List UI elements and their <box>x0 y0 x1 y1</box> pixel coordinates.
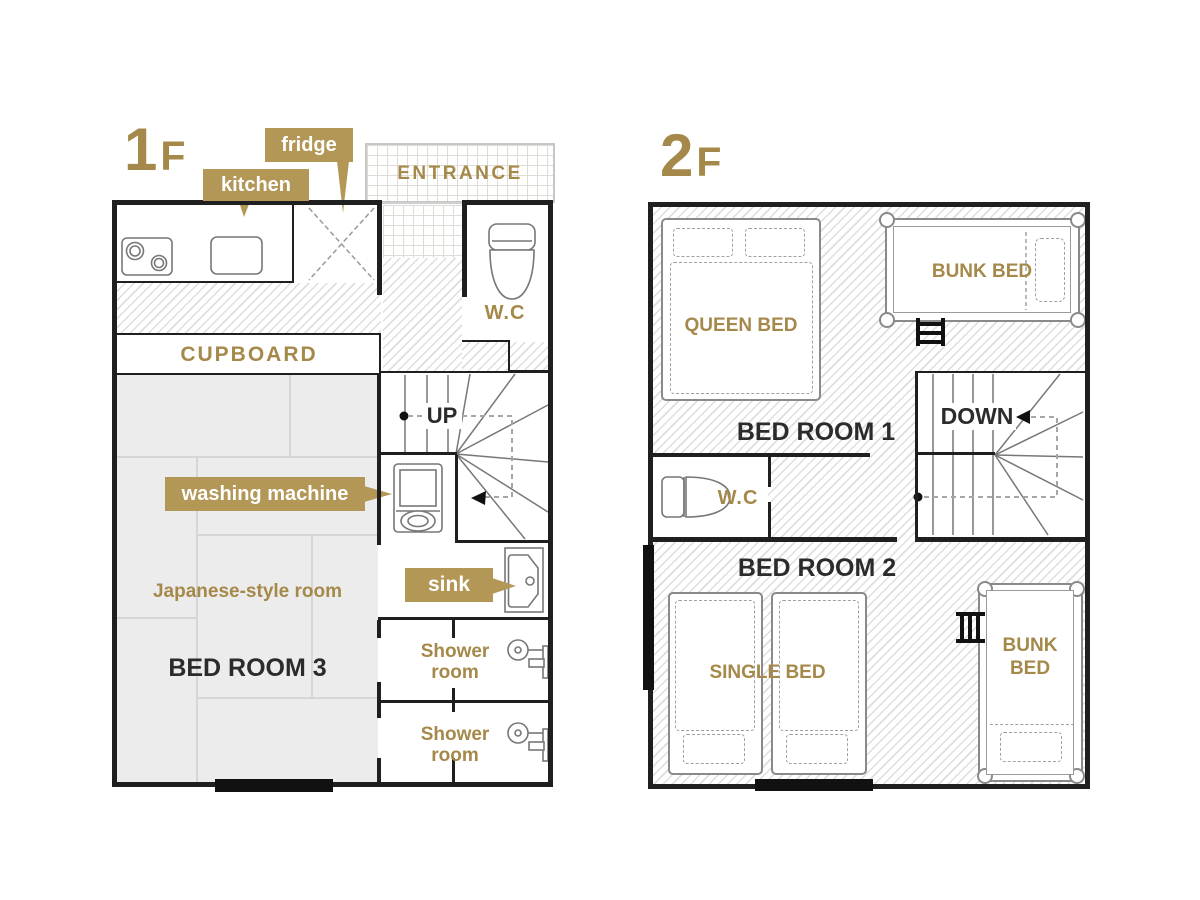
fridge-callout-tail <box>337 161 349 213</box>
wall-segment <box>648 202 1090 207</box>
tatami-mat-line <box>198 534 378 536</box>
fridge-icon <box>309 208 374 280</box>
wall-segment <box>915 537 1085 542</box>
tatami-mat-line <box>289 375 291 456</box>
wall-segment <box>377 200 382 295</box>
wall-segment <box>648 202 653 789</box>
floor1-title: 1F <box>124 120 185 180</box>
fridge-callout: fridge <box>265 128 353 162</box>
bunk-bed-post <box>1070 312 1086 328</box>
wall-segment <box>1085 202 1090 789</box>
wall-segment <box>377 373 381 545</box>
tatami-mat-line <box>117 617 196 619</box>
stairs-edge <box>455 540 548 543</box>
shower-room-label: Shower room <box>390 724 520 766</box>
floor1-title-letter: F <box>160 136 185 177</box>
sink-callout-tail <box>492 578 516 594</box>
tatami-mat-line <box>198 697 378 699</box>
bedroom1-label: BED ROOM 1 <box>733 418 899 447</box>
single-bed-pillow <box>786 734 848 764</box>
single-bed-pillow <box>683 734 745 764</box>
entrance-tile-inner <box>383 205 462 258</box>
down-label: DOWN <box>938 403 1016 430</box>
wall-segment <box>653 453 870 457</box>
stairs-edge <box>381 452 457 455</box>
entrance-threshold <box>381 202 462 204</box>
stairs-edge <box>915 371 1085 373</box>
wall-segment <box>377 620 381 638</box>
bunk-bed-post <box>879 312 895 328</box>
shower-room-line2: room <box>390 662 520 683</box>
washing-machine-callout: washing machine <box>165 477 365 511</box>
wall-segment <box>462 200 553 205</box>
single-bed-label: SINGLE BED <box>668 662 867 684</box>
wc-label: W.C <box>462 302 548 325</box>
wc-wall <box>508 340 510 372</box>
queen-bed-label: QUEEN BED <box>661 315 821 337</box>
kitchen-callout: kitchen <box>203 169 309 201</box>
cupboard-edge <box>117 333 381 335</box>
hallway-hatch <box>383 258 462 373</box>
floor1-title-number: 1 <box>124 120 158 180</box>
shower-room-line1: Shower <box>390 724 520 745</box>
staircase-floor <box>915 373 1085 537</box>
queen-bed-pillow <box>745 228 805 257</box>
floor2-title-number: 2 <box>660 126 694 186</box>
door-mark <box>215 779 333 792</box>
tatami-mat-line <box>117 456 378 458</box>
shower-room-label: Shower room <box>390 641 520 683</box>
wc-label: W.C <box>705 487 771 510</box>
floor2-title-letter: F <box>696 142 721 183</box>
bunk-bed-top-label: BUNK BED <box>893 261 1071 283</box>
wall-segment <box>112 200 117 787</box>
wc-wall <box>768 457 771 487</box>
entrance-label: ENTRANCE <box>367 163 553 185</box>
wall-segment <box>377 758 381 784</box>
wall-segment <box>462 200 467 297</box>
wall-segment <box>653 537 897 542</box>
shower-partition <box>452 620 455 638</box>
bunk-bed-right-line1: BUNK <box>986 634 1074 657</box>
shower-room-line2: room <box>390 745 520 766</box>
queen-bed-pillow <box>673 228 733 257</box>
bunk-bed-post <box>1070 212 1086 228</box>
bedroom2-label: BED ROOM 2 <box>734 554 900 583</box>
washroom-wall <box>378 617 548 620</box>
counter-edge <box>292 205 294 283</box>
bunk-bed-right-line2: BED <box>986 657 1074 680</box>
stairs-edge <box>915 452 995 455</box>
japanese-room-label: Japanese-style room <box>117 581 378 603</box>
sink-callout: sink <box>405 568 493 602</box>
sink-icon <box>505 548 543 612</box>
cupboard-edge <box>117 373 381 375</box>
stairs-edge <box>455 455 458 540</box>
up-label: UP <box>422 403 462 429</box>
wall-segment <box>548 200 553 787</box>
washroom-wall <box>378 700 548 703</box>
floor2-title: 2F <box>660 126 721 186</box>
door-mark <box>755 779 873 791</box>
staircase-floor <box>381 373 548 540</box>
window-mark <box>643 545 654 690</box>
shower-partition <box>452 688 455 712</box>
cupboard-label: CUPBOARD <box>117 343 381 367</box>
wc-wall <box>462 340 510 342</box>
shower-room-line1: Shower <box>390 641 520 662</box>
stove-icon <box>122 238 172 275</box>
bunk-bed-mattress-edge <box>990 724 1074 725</box>
kitchen-sink-icon <box>211 237 262 274</box>
stairs-edge <box>381 371 548 373</box>
floor-plan-canvas: 1F 2F kitchen fridge washing machine sin… <box>0 0 1200 900</box>
hallway-hatch <box>462 342 548 373</box>
tatami-floor <box>117 375 378 782</box>
bunk-bed-pillow <box>1000 732 1062 762</box>
counter-edge <box>117 281 293 283</box>
hallway-hatch <box>117 283 381 333</box>
bunk-bed-right-label: BUNK BED <box>986 634 1074 680</box>
bedroom3-label: BED ROOM 3 <box>117 654 378 683</box>
